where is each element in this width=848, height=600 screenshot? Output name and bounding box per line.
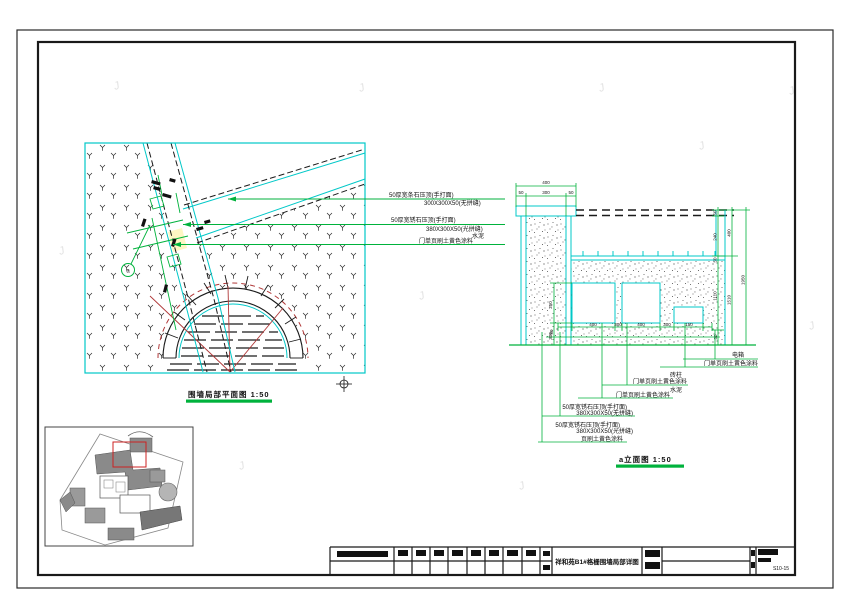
label-brick-pillar: 砖柱 (670, 371, 682, 379)
dim-right-1: 50 (713, 210, 718, 216)
fence-rails (576, 210, 734, 216)
dim-top-left: 50 (518, 190, 524, 195)
dim-bottom-4: 300 (663, 322, 671, 327)
pilaster (516, 206, 576, 345)
dim-top-total: 400 (542, 180, 550, 185)
label-paint-2: 门单页刷土黄色涂料 (633, 378, 687, 386)
dim-right-3: 50 (713, 257, 718, 263)
watermark: J (236, 460, 246, 474)
plan-label-paint: 门单页刷土黄色涂料 (419, 237, 473, 245)
elevation-title-underline (616, 465, 684, 468)
dim-bottom-3: 400 (637, 322, 645, 327)
label-paint-3: 门单页刷土黄色涂料 (616, 391, 670, 399)
dim-bottom-2: 300 (614, 322, 622, 327)
dim-right-4: 1110 (713, 291, 718, 301)
dim-right-m1: 400 (727, 229, 732, 237)
dim-left-upper: 250 (548, 301, 553, 309)
label-coping-1-size: 380X300X50(无拼缝) (576, 409, 633, 417)
plan-title: 围墙局部平面图 1:50 (188, 389, 270, 399)
sheet-number: S10-15 (773, 566, 789, 572)
plan-label-coping1: 50厚宽条石压顶(手打面) (389, 191, 454, 199)
watermark: J (111, 80, 121, 94)
watermark: J (56, 245, 66, 259)
label-cement: 水泥 (670, 386, 682, 394)
watermark: J (416, 290, 426, 304)
elevation-title: a立面图 1:50 (619, 454, 672, 464)
label-coping-1: 50厚宽锈石压顶(手打面) (562, 403, 627, 411)
plan-label-coping2-size: 380X300X50(光拼缝) (426, 225, 483, 233)
cad-canvas: J J J J J J J J J J (0, 0, 848, 600)
plan-label-coping2: 50厚宽锈石压顶(手打面) (391, 216, 456, 224)
plan-label-cement: 水泥 (472, 232, 484, 240)
dim-left-lower: 300 (548, 332, 553, 340)
plan-title-group: 围墙局部平面图 1:50 (186, 389, 272, 403)
dim-bottom-1: 400 (589, 322, 597, 327)
electric-box-opening (674, 307, 703, 323)
dim-right-m2: 1510 (727, 294, 732, 305)
dim-right-2: 240 (713, 233, 718, 241)
label-coping-2-size: 380X300X50(光拼缝) (576, 427, 633, 435)
plan-view: a 50厚宽条石压顶(手打面) 300X300X50(无拼缝) (85, 143, 505, 403)
watermark: J (696, 140, 706, 154)
label-paint-1: 门单页刷土黄色涂料 (704, 360, 758, 368)
watermark: J (516, 480, 526, 494)
cad-drawing-page: J J J J J J J J J J (0, 0, 848, 600)
drawing-title: 祥和苑B1#格栅围墙局部详图 (555, 557, 639, 566)
watermark: J (356, 82, 366, 96)
dim-bottom-5: 150 (685, 322, 693, 327)
dim-bottom-side-right: 50 (713, 334, 718, 340)
wall-opening-2 (622, 283, 660, 323)
dim-right-total: 1950 (741, 274, 746, 285)
label-electric-box: 电箱 (732, 351, 744, 359)
elevation-title-group: a立面图 1:50 (616, 454, 684, 468)
plan-title-underline (186, 400, 272, 403)
watermark: J (806, 320, 816, 334)
wall-opening-1 (572, 283, 615, 323)
plan-label-coping1-size: 300X300X50(无拼缝) (424, 199, 481, 207)
watermark: J (596, 82, 606, 96)
elevation-view: 400 50 300 50 400 300 400 300 150 50 50 (509, 180, 758, 468)
key-plan (45, 427, 193, 546)
crosshair-marker (336, 376, 352, 392)
title-block: 祥和苑B1#格栅围墙局部详图 S10-15 (330, 547, 795, 575)
label-coping-2-paint: 页刷土黄色涂料 (581, 435, 623, 443)
section-labels: 电箱 门单页刷土黄色涂料 砖柱 门单页刷土黄色涂料 水泥 门单页刷土黄色涂料 5… (555, 351, 758, 443)
label-coping-2: 50厚宽锈石压顶(手打面) (555, 421, 620, 429)
dim-top-right: 50 (568, 190, 574, 195)
dim-top-mid: 300 (542, 190, 550, 195)
